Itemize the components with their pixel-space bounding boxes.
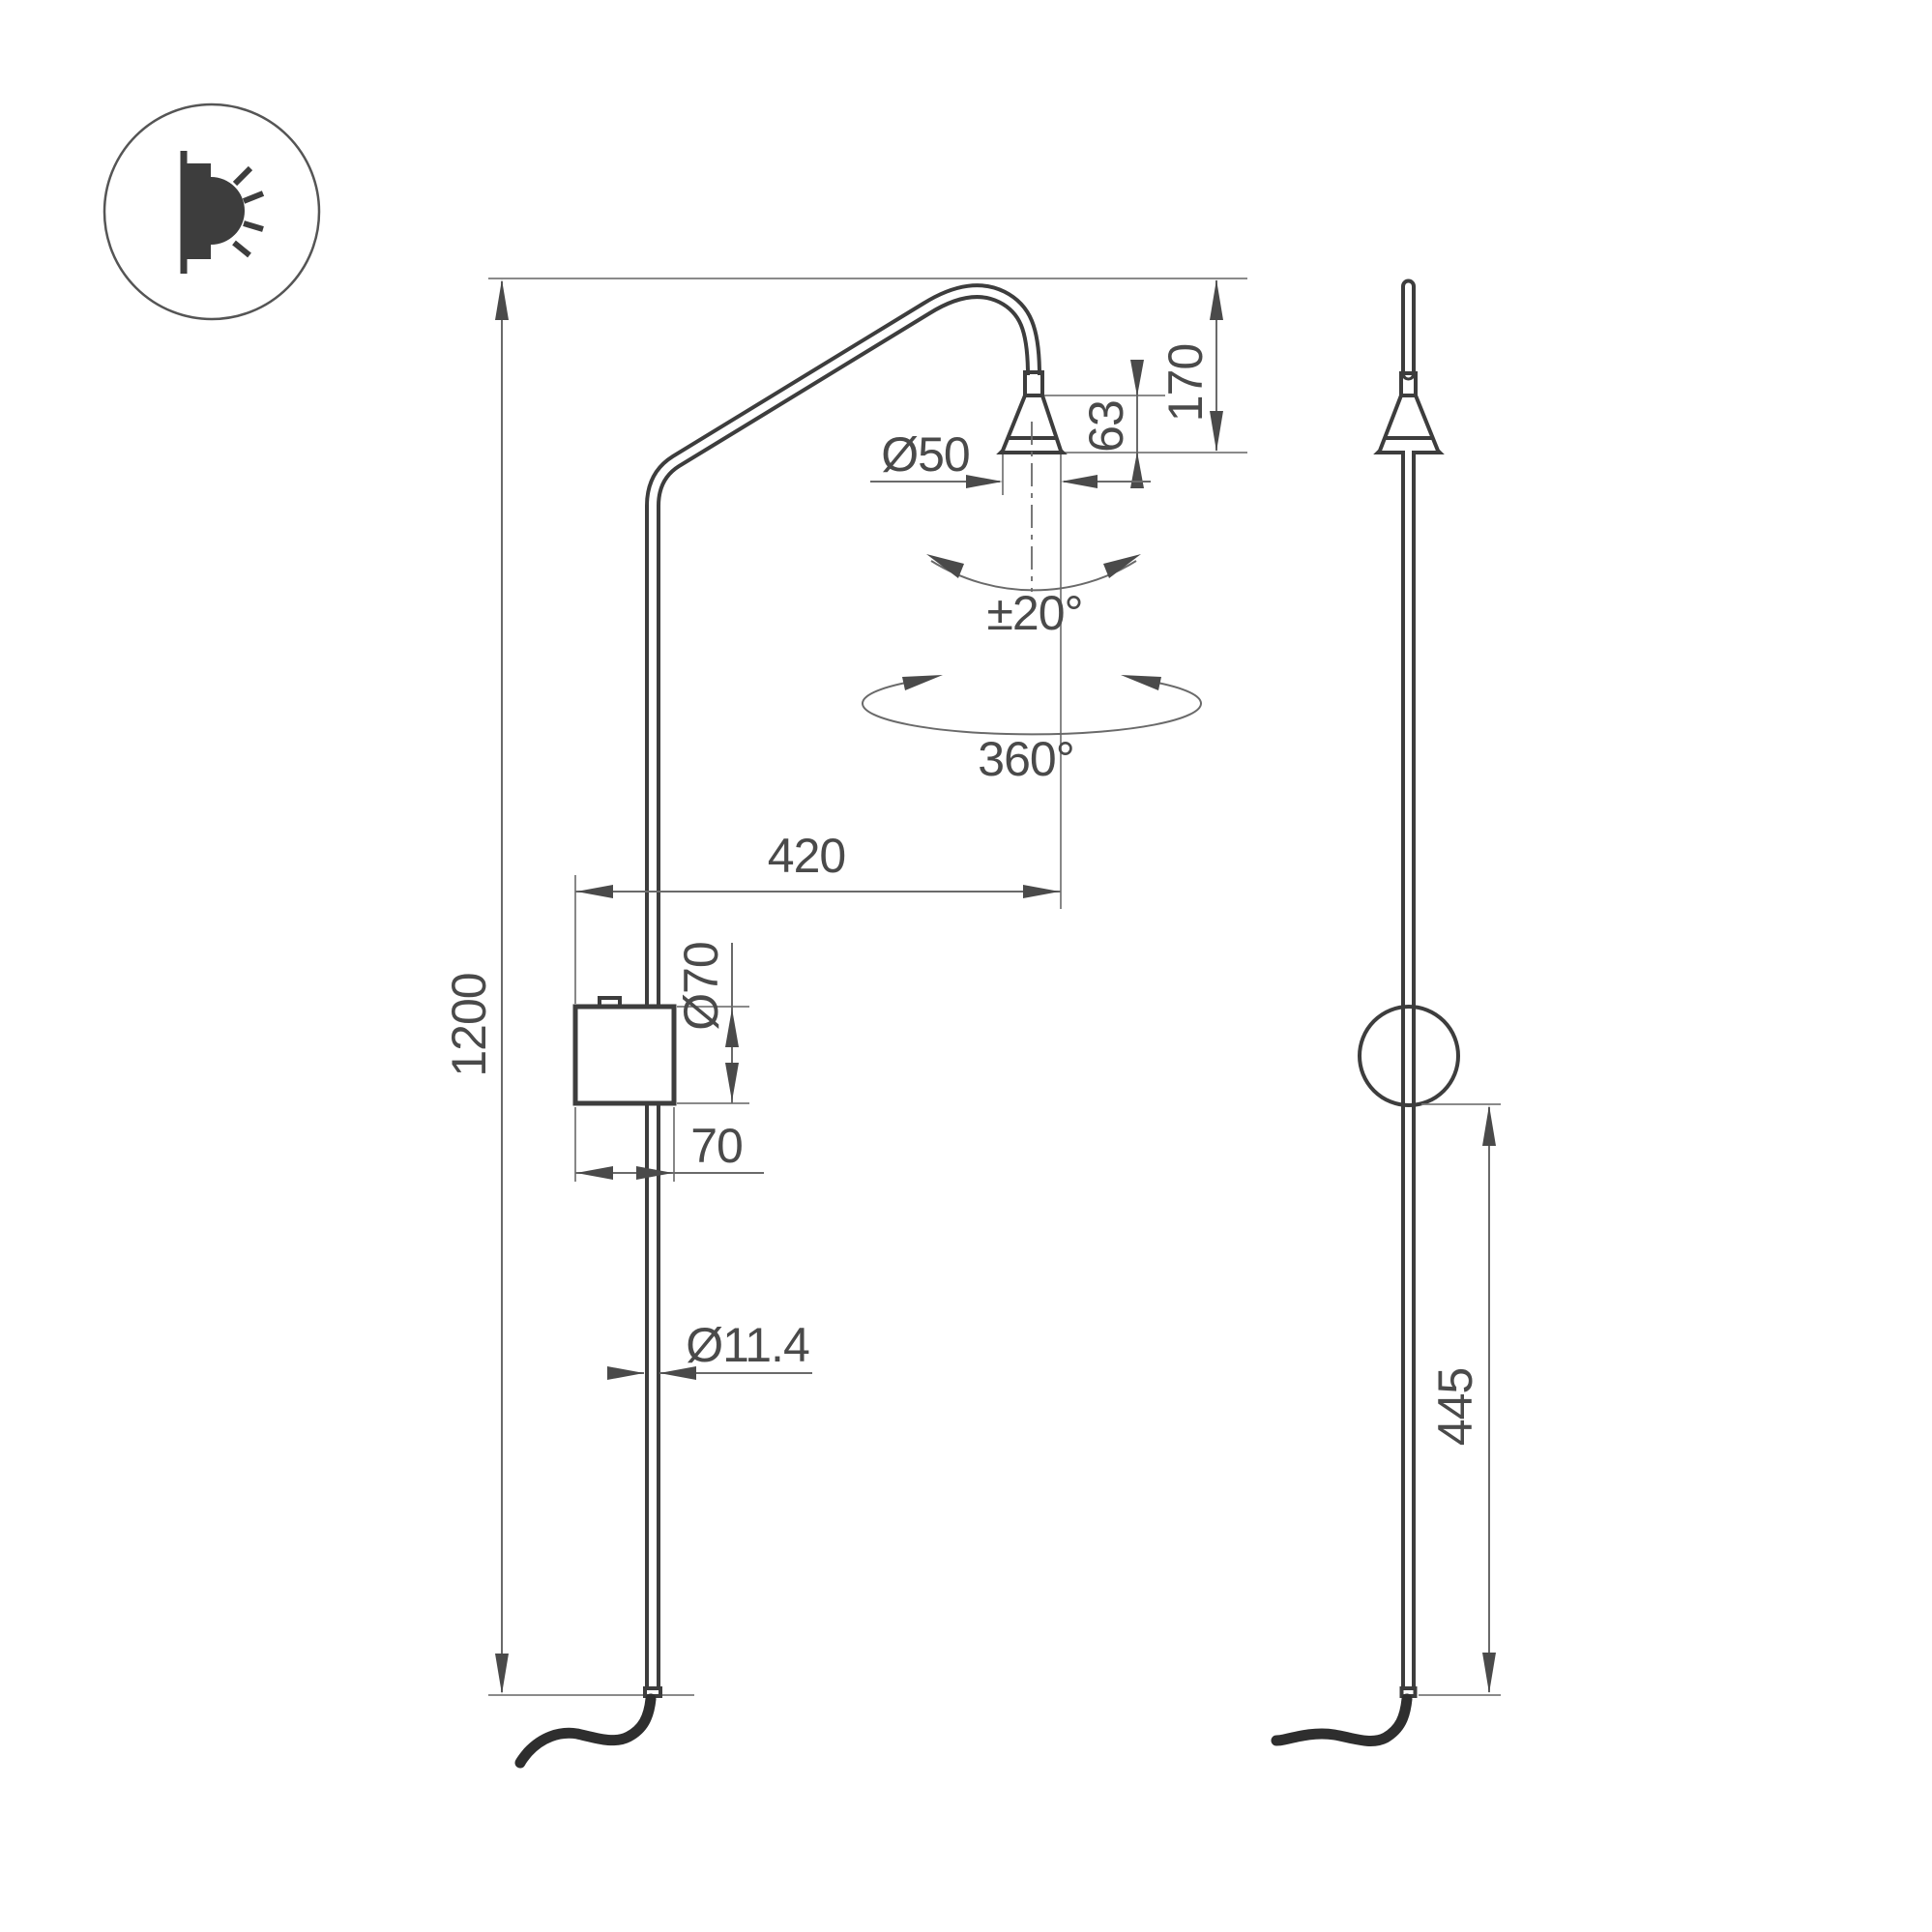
- dim-70dia-bottom-arrow: [725, 1063, 739, 1101]
- wall-mount-box: [575, 1007, 674, 1103]
- dim-170-top-arrow: [1210, 279, 1223, 320]
- dim-label-head-diameter: Ø50: [881, 427, 970, 482]
- lamp-head-joint: [1025, 372, 1042, 395]
- dim-label-cone-height: 63: [1079, 400, 1133, 453]
- front-view-extension-lines: [488, 278, 1247, 1695]
- dim-50-left-arrow: [966, 475, 1003, 488]
- power-cable-side: [1276, 1699, 1407, 1741]
- dim-label-lower-pole-length: 445: [1428, 1368, 1482, 1446]
- dim-63-top-arrow: [1130, 360, 1144, 396]
- side-view-lamp: [1276, 286, 1458, 1741]
- icon-lamp-lens: [211, 177, 245, 245]
- dim-label-head-drop: 170: [1158, 344, 1213, 422]
- wall-light-icon: [104, 104, 319, 319]
- dim-label-pole-diameter: Ø11.4: [686, 1318, 809, 1372]
- side-head-cone: [1378, 395, 1440, 453]
- dim-420-right-arrow: [1023, 885, 1060, 898]
- icon-light-ray: [235, 168, 250, 184]
- wall-mount-switch: [600, 998, 620, 1007]
- rotation-left-arrow: [902, 675, 943, 690]
- drawing-page: 1200 170 63 Ø50 ±20° 360° 420 Ø70: [0, 0, 1932, 1932]
- dim-1200-top-arrow: [495, 279, 509, 320]
- dim-label-total-height: 1200: [442, 973, 496, 1076]
- dim-label-tilt-angle: ±20°: [986, 586, 1082, 640]
- dim-1200-bottom-arrow: [495, 1654, 509, 1694]
- dim-label-rotation-angle: 360°: [978, 732, 1073, 786]
- dim-420-left-arrow: [576, 885, 613, 898]
- dim-445-bottom-arrow: [1482, 1653, 1496, 1693]
- rotation-ellipse: [863, 680, 1201, 734]
- dim-11-left-arrow: [607, 1366, 644, 1380]
- front-view-lamp: [520, 291, 1063, 1763]
- side-view-dimensions: 445: [1419, 1104, 1501, 1695]
- tilt-arc-right-arrow: [1103, 554, 1141, 578]
- technical-drawing: 1200 170 63 Ø50 ±20° 360° 420 Ø70: [0, 0, 1932, 1932]
- dim-label-mount-depth: 70: [690, 1119, 743, 1173]
- icon-light-ray: [234, 243, 249, 255]
- dim-label-mount-diameter: Ø70: [674, 942, 728, 1031]
- dim-63-bottom-arrow: [1130, 452, 1144, 488]
- tilt-arc-left-arrow: [926, 554, 964, 578]
- icon-lamp-body: [185, 163, 211, 259]
- power-cable-front: [520, 1699, 651, 1763]
- dim-70-left-arrow: [576, 1166, 613, 1180]
- icon-light-ray: [244, 223, 263, 229]
- dim-445-top-arrow: [1482, 1105, 1496, 1146]
- rotation-right-arrow: [1121, 675, 1161, 690]
- dim-50-right-arrow: [1061, 475, 1098, 488]
- dim-label-arm-reach: 420: [768, 829, 845, 883]
- front-view-dimensions: 1200 170 63 Ø50 ±20° 360° 420 Ø70: [442, 279, 1223, 1694]
- icon-light-ray: [244, 193, 263, 201]
